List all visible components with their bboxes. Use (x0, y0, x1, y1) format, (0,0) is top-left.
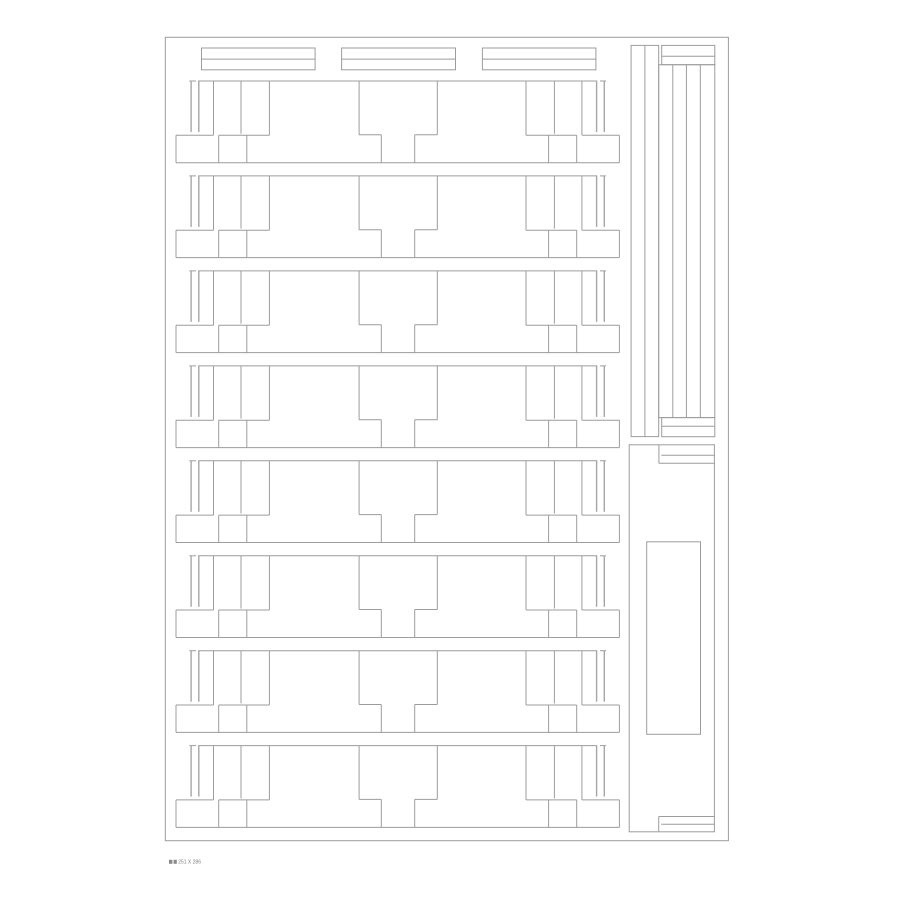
svg-text:251 X 286: 251 X 286 (178, 860, 201, 866)
